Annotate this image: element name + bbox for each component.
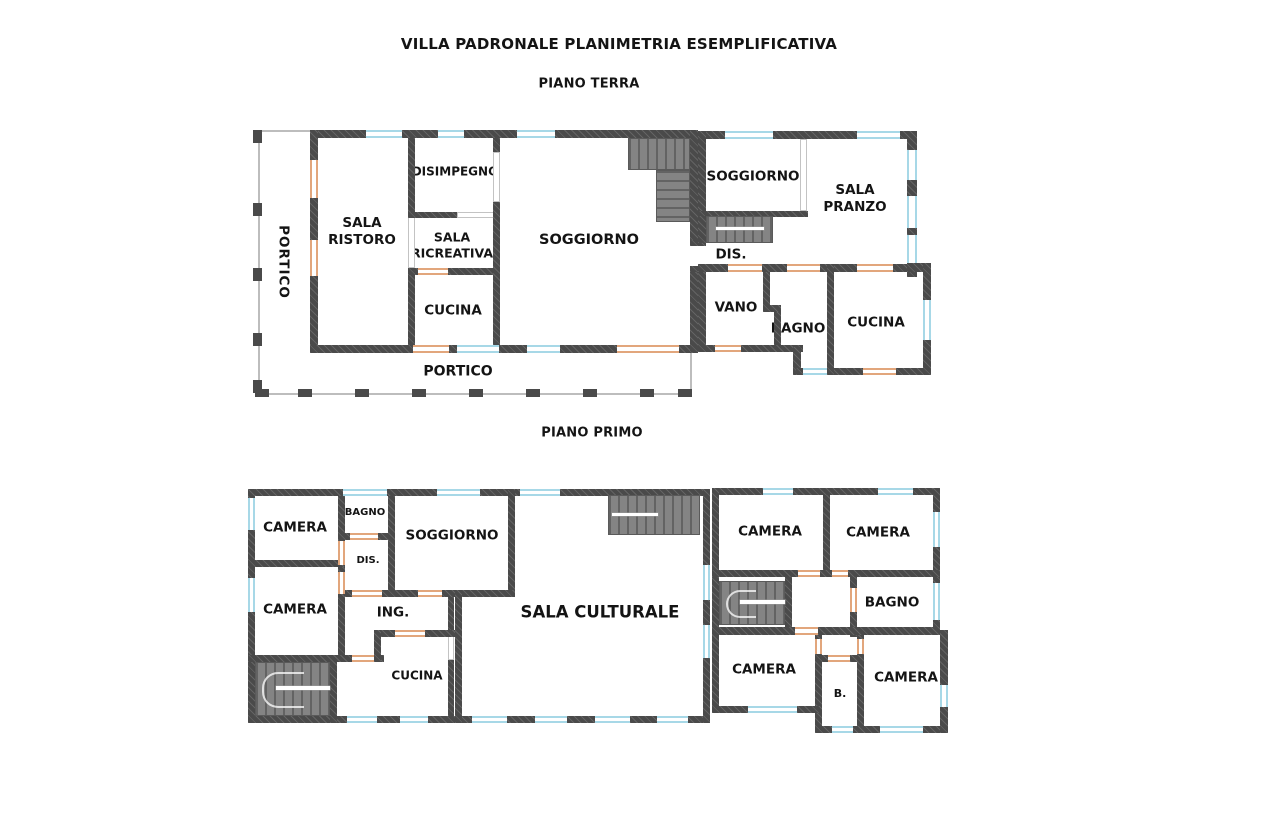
partition <box>493 152 500 202</box>
wall <box>823 495 830 577</box>
window <box>748 706 797 713</box>
room-label-b: B. <box>834 687 847 701</box>
portico-line <box>258 130 312 132</box>
wall <box>763 305 781 312</box>
room-label-bagno-nw: BAGNO <box>345 507 385 520</box>
door <box>798 570 820 577</box>
window <box>438 130 464 138</box>
portico-post <box>412 389 426 397</box>
room-label-camera-ne2: CAMERA <box>846 525 910 542</box>
door <box>352 590 382 597</box>
plan-title: VILLA PADRONALE PLANIMETRIA ESEMPLIFICAT… <box>401 35 837 53</box>
room-label-dis-fl: DIS. <box>356 555 379 568</box>
stairs-ground-left <box>628 138 690 170</box>
window <box>657 716 688 723</box>
room-label-ing: ING. <box>377 605 410 622</box>
partition <box>408 216 415 268</box>
window <box>535 716 567 723</box>
wall <box>827 264 834 375</box>
room-label-camera-ne: CAMERA <box>738 524 802 541</box>
window <box>907 150 917 180</box>
window <box>803 368 827 375</box>
wall <box>712 627 940 635</box>
portico-post <box>355 389 369 397</box>
window <box>832 726 853 733</box>
window <box>457 345 499 353</box>
room-label-cucina-pt: CUCINA <box>424 303 482 320</box>
stair-return-curve <box>262 672 304 708</box>
room-label-camera-se: CAMERA <box>874 670 938 687</box>
window <box>472 716 507 723</box>
room-label-dis-pt: DIS. <box>715 247 746 264</box>
room-label-camera-sw: CAMERA <box>732 662 796 679</box>
wall <box>330 662 337 723</box>
room-label-cucina-right: CUCINA <box>847 315 905 332</box>
wall <box>455 590 462 723</box>
door <box>728 264 762 272</box>
partition <box>457 212 497 218</box>
room-label-soggiorno-fl: SOGGIORNO <box>405 528 498 545</box>
window <box>517 130 555 138</box>
portico-post <box>469 389 483 397</box>
stairs-ground-left <box>656 170 690 222</box>
stair-return <box>612 513 658 516</box>
room-label-disimpegno: DISIMPEGNO <box>412 165 499 180</box>
wall <box>455 590 515 597</box>
room-label-camera-nw: CAMERA <box>263 520 327 537</box>
room-label-cucina-fl: CUCINA <box>391 669 442 684</box>
room-label-sala-ricreativa: SALA RICREATIVA <box>407 229 497 260</box>
window <box>933 583 940 620</box>
wall <box>690 130 698 245</box>
window <box>366 130 402 138</box>
room-label-soggiorno-pt: SOGGIORNO <box>539 231 639 249</box>
portico-post <box>253 130 262 143</box>
partition <box>448 635 454 660</box>
window <box>933 512 940 547</box>
door <box>787 264 820 272</box>
door <box>863 368 896 375</box>
door <box>857 639 864 654</box>
window <box>923 300 931 340</box>
ground-floor-label: PIANO TERRA <box>539 77 640 92</box>
door <box>617 345 679 353</box>
door <box>338 541 345 565</box>
door <box>395 630 425 637</box>
door <box>310 160 318 198</box>
window <box>907 235 917 263</box>
room-label-sala-culturale: SALA CULTURALE <box>521 603 680 624</box>
wall <box>448 660 454 716</box>
portico-post <box>583 389 597 397</box>
door <box>418 590 442 597</box>
room-label-bagno-e: BAGNO <box>865 595 920 612</box>
room-label-sala-pranzo: SALA PRANZO <box>815 182 895 216</box>
room-label-camera-w: CAMERA <box>263 602 327 619</box>
room-label-soggiorno-right: SOGGIORNO <box>706 169 799 186</box>
wall <box>698 266 706 352</box>
window <box>343 489 387 496</box>
window <box>248 498 255 530</box>
first-floor-label: PIANO PRIMO <box>541 426 642 441</box>
window <box>907 196 917 228</box>
door <box>350 533 378 540</box>
room-label-sala-ristoro: SALA RISTORO <box>319 215 405 249</box>
portico-post <box>298 389 312 397</box>
portico-line <box>258 130 260 395</box>
door <box>828 655 850 662</box>
room-label-portico-bottom: PORTICO <box>423 363 492 381</box>
door <box>715 345 741 352</box>
window <box>725 131 773 139</box>
room-label-vano: VANO <box>715 300 758 317</box>
window <box>703 625 710 658</box>
window <box>703 565 710 600</box>
stair-return-curve <box>726 590 756 618</box>
stair-return <box>716 227 764 230</box>
wall <box>698 345 803 352</box>
window <box>248 578 255 612</box>
window <box>763 488 793 495</box>
door <box>795 627 818 635</box>
window <box>520 489 560 496</box>
door <box>832 570 848 577</box>
portico-post <box>255 389 269 397</box>
wall <box>940 630 948 733</box>
wall <box>712 488 719 713</box>
wall <box>508 489 515 597</box>
door <box>815 639 822 654</box>
portico-post <box>640 389 654 397</box>
window <box>857 131 900 139</box>
floorplan-sheet: VILLA PADRONALE PLANIMETRIA ESEMPLIFICAT… <box>0 0 1280 837</box>
door <box>310 240 318 276</box>
portico-post <box>526 389 540 397</box>
door <box>418 268 448 275</box>
wall <box>248 560 345 567</box>
door <box>413 345 449 353</box>
door <box>850 588 857 612</box>
window <box>400 716 428 723</box>
window <box>878 488 913 495</box>
door <box>338 572 345 594</box>
portico-post <box>253 333 262 346</box>
window <box>880 726 923 733</box>
portico-post <box>253 203 262 216</box>
window <box>527 345 560 353</box>
window <box>940 685 948 707</box>
window <box>595 716 630 723</box>
window <box>437 489 480 496</box>
portico-post <box>678 389 692 397</box>
wall <box>374 630 381 662</box>
door <box>857 264 893 272</box>
wall <box>703 489 710 723</box>
wall <box>388 496 395 597</box>
wall <box>712 570 940 577</box>
room-label-portico-left: PORTICO <box>275 225 292 299</box>
wall <box>690 268 698 352</box>
partition-glass <box>800 139 807 211</box>
window <box>347 716 377 723</box>
portico-post <box>253 268 262 281</box>
